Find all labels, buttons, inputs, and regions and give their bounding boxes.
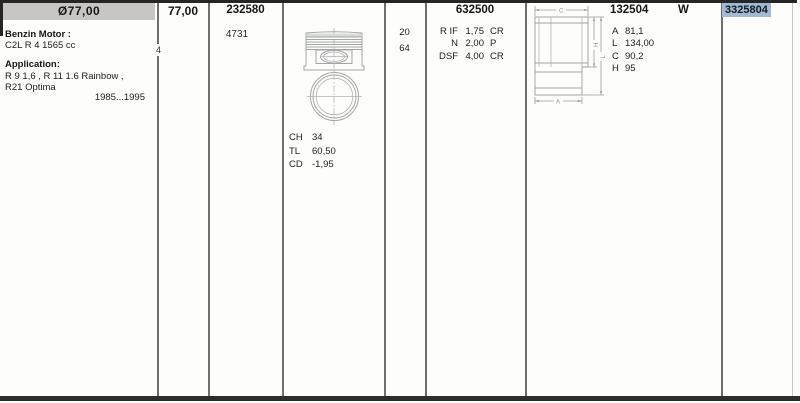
production-years: 1985...1995: [55, 92, 145, 103]
piston-spec-row: TL 60,50: [289, 145, 336, 159]
reference-number-highlighted: 3325804: [722, 3, 771, 17]
bore-size-header: Ø77,00: [3, 3, 155, 20]
application-models-line2: R21 Optima: [5, 82, 56, 93]
dim-label-h: H: [594, 43, 600, 47]
column-divider: [384, 3, 386, 396]
dim-letter: H: [612, 63, 625, 75]
dim-letter: C: [612, 51, 625, 63]
liner-dimension-list: A 81,1 L 134,00 C 90,2 H 95: [612, 26, 654, 76]
pin-length-value: 64: [385, 43, 424, 54]
piston-part-number: 232580: [210, 4, 281, 16]
column-divider: [208, 3, 210, 396]
spec-label: CH: [289, 131, 312, 145]
column-divider: [157, 3, 159, 396]
ring-type: N: [426, 38, 458, 50]
table-bottom-border: [0, 396, 800, 401]
piston-code: 4731: [209, 29, 265, 40]
dim-label-l: L: [601, 55, 607, 59]
ring-coating: CR: [490, 51, 504, 63]
ring-set-part-number: 632500: [426, 4, 524, 16]
ring-spec-list: R IF 1,75 CR N 2,00 P DSF 4,00 CR: [426, 26, 504, 63]
piston-technical-drawing-icon: [299, 26, 369, 126]
liner-dim-row: H 95: [612, 63, 654, 75]
liner-dim-row: C 90,2: [612, 51, 654, 63]
ring-type: R IF: [426, 26, 458, 38]
ring-size: 1,75: [458, 26, 484, 38]
ring-size: 4,00: [458, 51, 484, 63]
liner-dim-row: L 134,00: [612, 38, 654, 50]
dim-label-c: C: [559, 9, 564, 15]
spec-value: 60,50: [312, 145, 336, 159]
dim-letter: L: [612, 38, 625, 50]
engine-code: C2L R 4 1565 cc: [5, 40, 75, 51]
table-right-border: [792, 3, 793, 396]
bore-value: 77,00: [159, 4, 207, 18]
liner-variant-flag: W: [678, 4, 689, 16]
application-models-line1: R 9 1,6 , R 11 1.6 Rainbow ,: [5, 71, 124, 82]
ring-spec-row: N 2,00 P: [426, 38, 504, 50]
column-divider: [282, 3, 284, 396]
liner-part-number: 132504: [610, 4, 648, 16]
dim-value: 90,2: [625, 51, 644, 63]
spec-label: TL: [289, 145, 312, 159]
ring-size: 2,00: [458, 38, 484, 50]
ring-coating: CR: [490, 26, 504, 38]
catalog-row-sheet: Ø77,00 Benzin Motor : C2L R 4 1565 cc Ap…: [0, 0, 800, 403]
column-divider: [721, 3, 723, 396]
application-label: Application:: [5, 59, 60, 70]
cylinder-count: 4: [152, 44, 165, 56]
piston-spec-list: CH 34 TL 60,50 CD -1,95: [289, 131, 336, 172]
piston-spec-row: CD -1,95: [289, 158, 336, 172]
ring-spec-row: R IF 1,75 CR: [426, 26, 504, 38]
piston-spec-row: CH 34: [289, 131, 336, 145]
spec-value: 34: [312, 131, 323, 145]
spec-value: -1,95: [312, 158, 334, 172]
dim-value: 81,1: [625, 26, 644, 38]
dim-letter: A: [612, 26, 625, 38]
dim-label-a: A: [556, 100, 560, 106]
liner-dim-row: A 81,1: [612, 26, 654, 38]
motor-type-label: Benzin Motor :: [5, 29, 71, 40]
ring-type: DSF: [426, 51, 458, 63]
ring-coating: P: [490, 38, 496, 50]
dim-value: 134,00: [625, 38, 654, 50]
ring-spec-row: DSF 4,00 CR: [426, 51, 504, 63]
spec-label: CD: [289, 158, 312, 172]
pin-diameter-value: 20: [385, 27, 424, 38]
cylinder-liner-technical-drawing-icon: C H L A: [527, 4, 609, 106]
dim-value: 95: [625, 63, 636, 75]
